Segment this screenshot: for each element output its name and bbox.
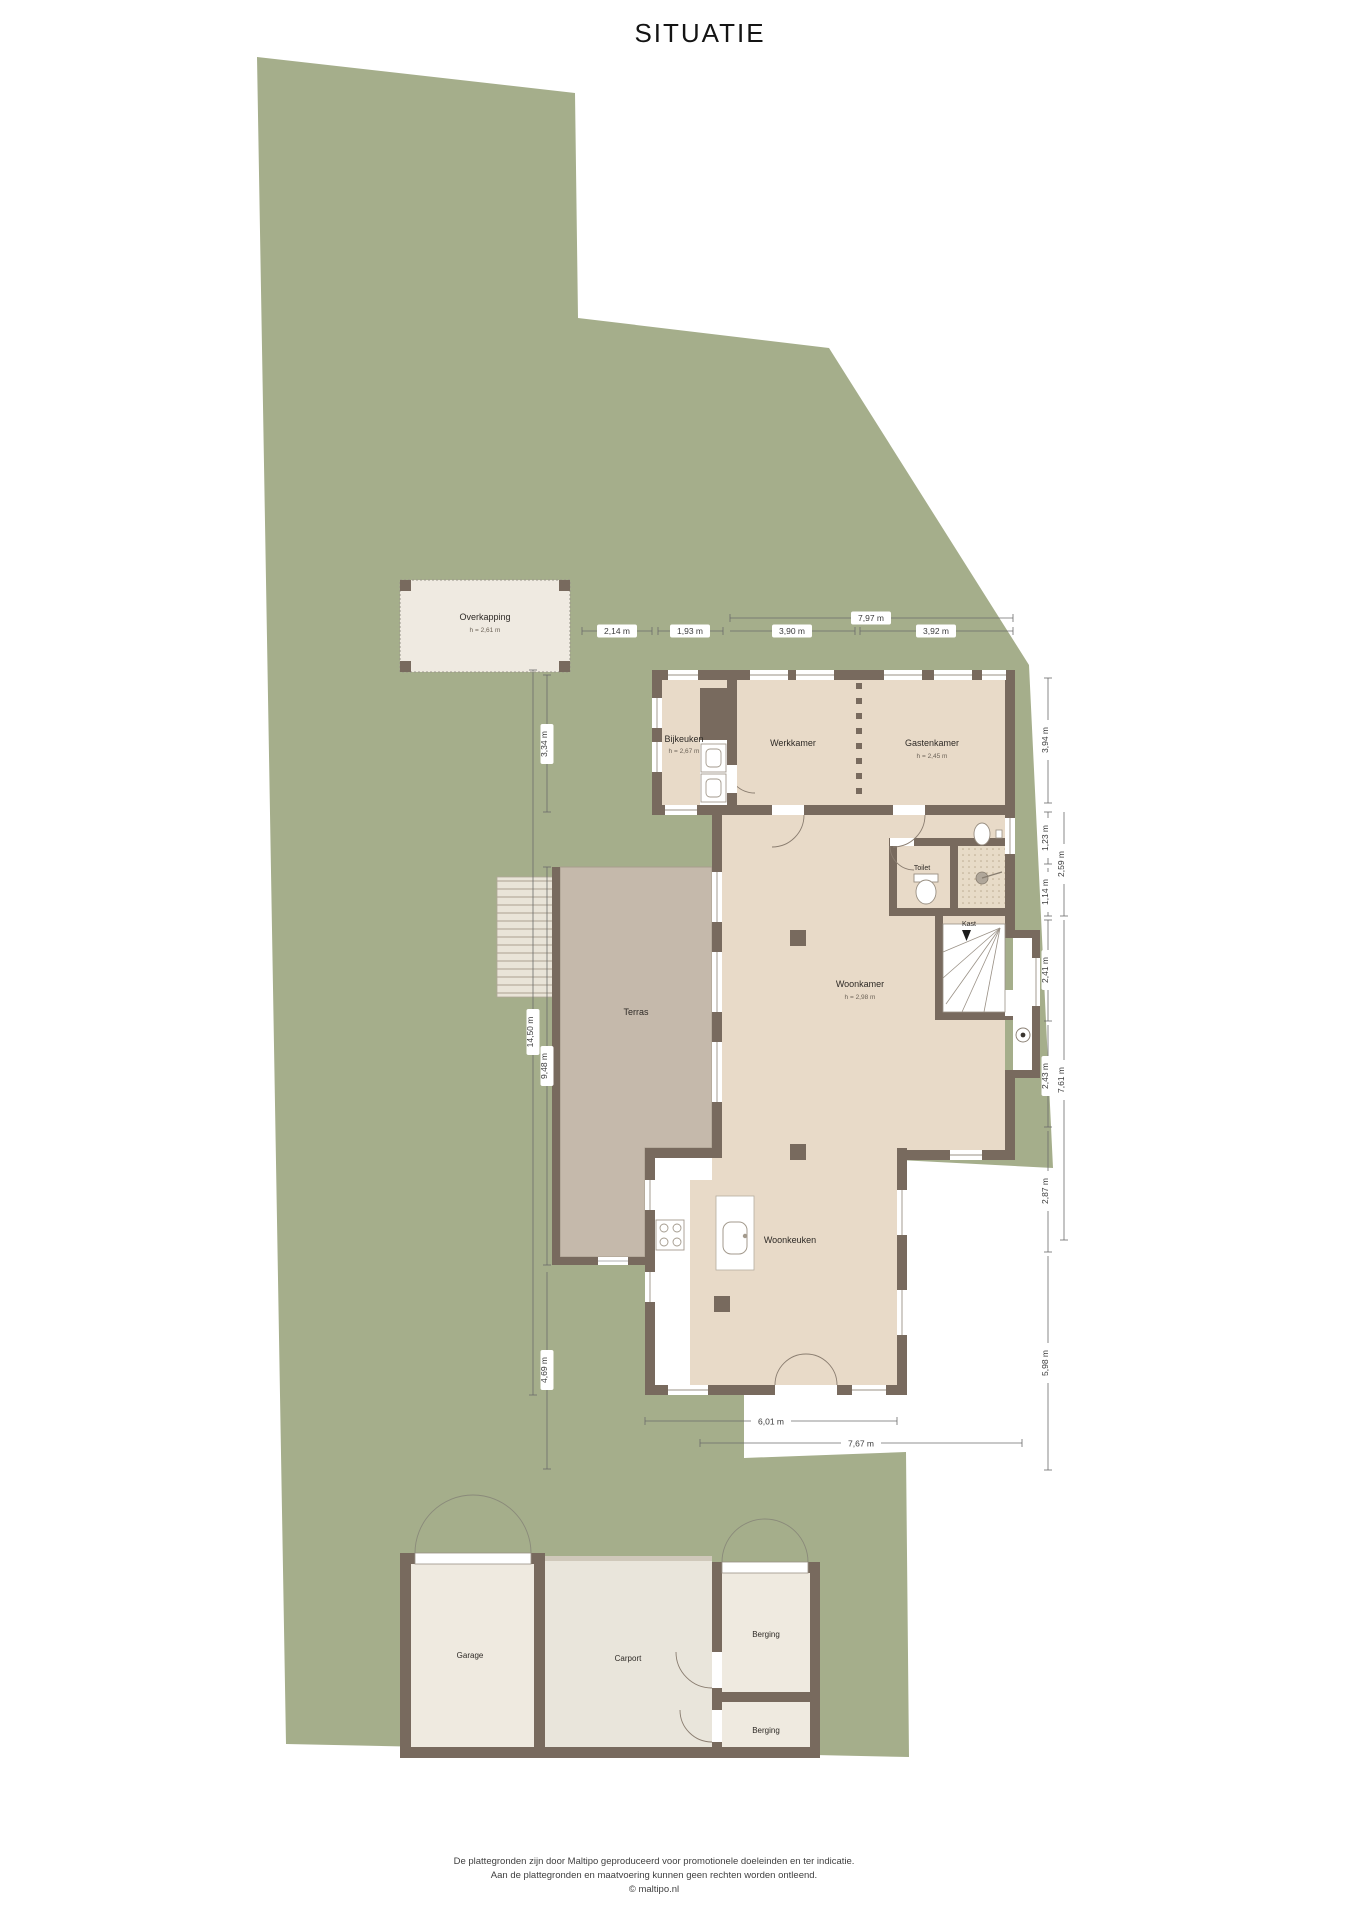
washer-icon	[701, 744, 726, 772]
dim-top-4: 3,90 m	[779, 626, 805, 636]
dim-bottom-2: 7,67 m	[848, 1439, 874, 1449]
tap-icon	[743, 1234, 747, 1238]
bijkeuken-appliances	[700, 740, 727, 805]
dim-left-3: 14,50 m	[525, 1017, 535, 1048]
berging2-label: Berging	[752, 1726, 780, 1735]
dim-right-2: 1,23 m	[1040, 825, 1050, 851]
dim-top-2: 1,93 m	[677, 626, 703, 636]
overkapping-label: Overkapping	[459, 612, 510, 622]
footer-line-3: © maltipo.nl	[629, 1884, 679, 1895]
dim-bottom-1: 6,01 m	[758, 1417, 784, 1427]
dim-left-2: 9,48 m	[539, 1053, 549, 1079]
overkapping-post	[400, 661, 411, 672]
bathroom-floor	[1013, 938, 1032, 1070]
carport-beam	[545, 1556, 712, 1561]
island-sink-icon	[723, 1222, 747, 1254]
page-title: SITUATIE	[634, 18, 765, 48]
kast-label: Kast	[962, 921, 976, 928]
shower-room	[958, 846, 1005, 908]
dim-right-3: 2,59 m	[1056, 851, 1066, 877]
overkapping-sub: h = 2,61 m	[470, 627, 501, 634]
dim-top-5: 3,92 m	[923, 626, 949, 636]
terras-steps	[497, 877, 555, 997]
dim-left-4: 4,69 m	[539, 1357, 549, 1383]
carport-label: Carport	[615, 1654, 642, 1663]
kitchen-counter	[655, 1158, 690, 1385]
bathroom	[1013, 938, 1032, 1070]
overkapping-post	[559, 580, 570, 591]
dim-right-5: 2,41 m	[1040, 957, 1050, 983]
dim-right-6: 2,43 m	[1040, 1063, 1050, 1089]
door-gap	[712, 1710, 722, 1742]
woonkamer-sub: h = 2,98 m	[845, 994, 876, 1001]
sink-icon	[974, 823, 990, 845]
gastenkamer-sub: h = 2,45 m	[917, 753, 948, 760]
stairs	[943, 924, 1005, 1012]
footer-line-1: De plattegronden zijn door Maltipo gepro…	[454, 1856, 855, 1867]
stove-icon	[656, 1220, 684, 1250]
gastenkamer-label: Gastenkamer	[905, 738, 959, 748]
kitchen-counter-top	[655, 1158, 712, 1180]
overkapping-post	[400, 580, 411, 591]
chimney-block	[700, 688, 727, 740]
woonkeuken-interior	[655, 1158, 897, 1385]
overkapping-post	[559, 661, 570, 672]
dim-right-7: 7,61 m	[1056, 1067, 1066, 1093]
overkapping: Overkapping h = 2,61 m	[400, 580, 570, 672]
dim-top-1: 2,14 m	[604, 626, 630, 636]
dim-left-1: 3,34 m	[539, 731, 549, 757]
overkapping-roof	[400, 580, 570, 672]
berging1-label: Berging	[752, 1630, 780, 1639]
situatie-page: SITUATIE Overkapping h = 2,61 m Terras	[0, 0, 1358, 1920]
footer-line-2: Aan de plattegronden en maatvoering kunn…	[491, 1870, 817, 1881]
werkkamer-label: Werkkamer	[770, 738, 816, 748]
dim-right-9: 5,98 m	[1040, 1350, 1050, 1376]
bijkeuken-label: Bijkeuken	[664, 734, 703, 744]
woonkamer-label: Woonkamer	[836, 979, 884, 989]
column	[790, 930, 806, 946]
garage-label: Garage	[457, 1651, 484, 1660]
dryer-icon	[701, 774, 726, 802]
dim-right-1: 3,94 m	[1040, 727, 1050, 753]
dim-top-3: 7,97 m	[858, 613, 884, 623]
dim-right-4: 1,14 m	[1040, 879, 1050, 905]
footer: De plattegronden zijn door Maltipo gepro…	[454, 1856, 855, 1895]
dim-right-8: 2,87 m	[1040, 1178, 1050, 1204]
terras-label: Terras	[623, 1007, 649, 1017]
situatie-plan-svg: SITUATIE Overkapping h = 2,61 m Terras	[0, 0, 1358, 1920]
berging2-interior	[722, 1702, 810, 1747]
bijkeuken-sub: h = 2,67 m	[669, 748, 700, 755]
column	[714, 1296, 730, 1312]
door-gap	[712, 1652, 722, 1688]
garage-door	[415, 1553, 531, 1564]
woonkeuken-label: Woonkeuken	[764, 1235, 816, 1245]
toilet-label: Toilet	[914, 865, 930, 872]
column	[790, 1144, 806, 1160]
berging-door	[722, 1562, 808, 1573]
toilet-bowl-icon	[916, 880, 936, 904]
door-gap	[727, 765, 737, 793]
